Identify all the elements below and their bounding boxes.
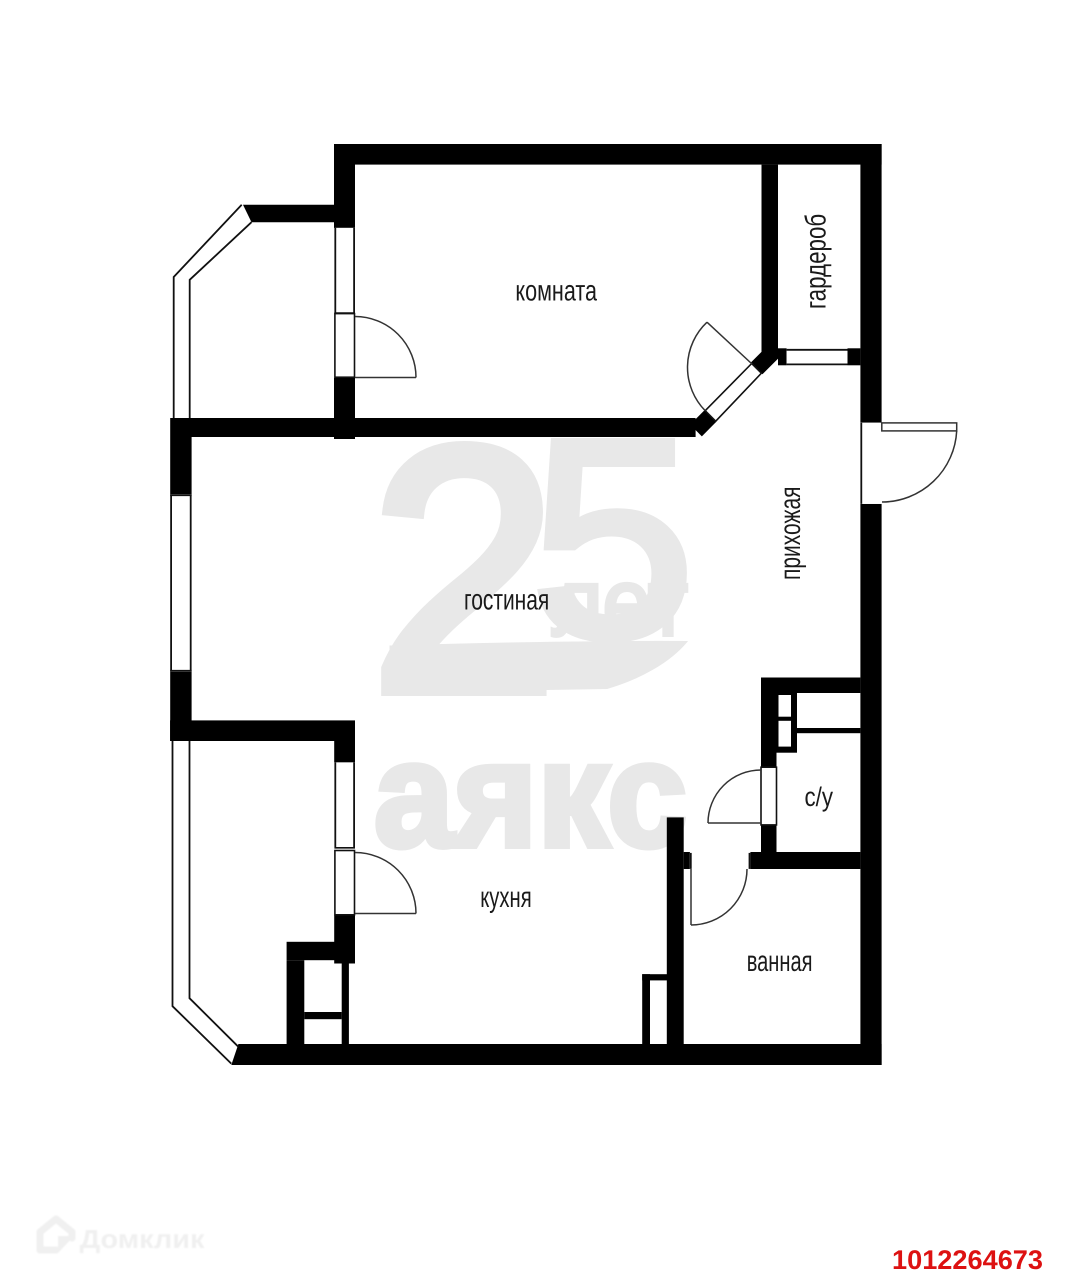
svg-text:ванная: ванная bbox=[747, 946, 813, 978]
svg-text:лет: лет bbox=[552, 550, 688, 656]
svg-text:Домклик: Домклик bbox=[80, 1224, 206, 1254]
svg-text:1012264673: 1012264673 bbox=[892, 1245, 1043, 1275]
svg-text:гостиная: гостиная bbox=[464, 585, 549, 617]
svg-text:с/у: с/у bbox=[805, 782, 834, 812]
svg-text:гардероб: гардероб bbox=[801, 214, 833, 309]
svg-text:комната: комната bbox=[515, 275, 597, 307]
svg-text:аякс: аякс bbox=[374, 710, 687, 878]
svg-text:кухня: кухня bbox=[480, 882, 532, 914]
svg-text:прихожая: прихожая bbox=[775, 487, 807, 581]
